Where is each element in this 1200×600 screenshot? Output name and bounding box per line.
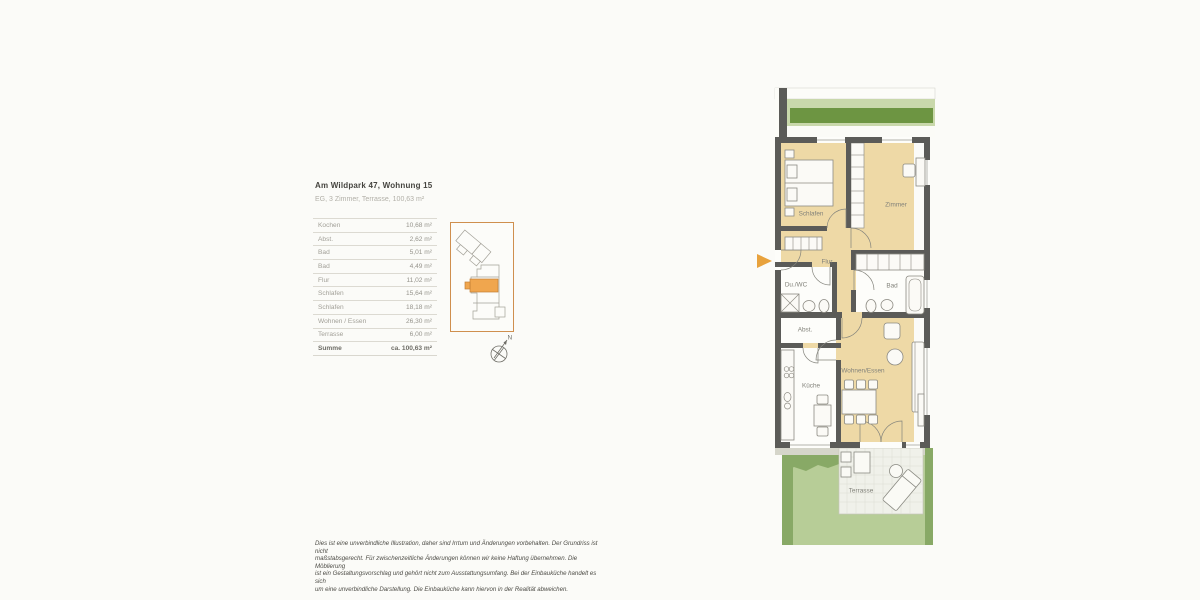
room-label-flur: Flur [821,259,832,266]
room-area-value: 4,49 m² [410,263,437,270]
area-table-row: Wohnen / Essen26,30 m² [313,314,437,328]
room-name: Abst. [313,236,333,243]
area-table-row: Abst.2,62 m² [313,232,437,246]
room-area-value: 15,64 m² [406,290,437,297]
room-name: Terrasse [313,331,343,338]
room-label-terrasse: Terrasse [849,488,874,495]
area-table-row: Bad5,01 m² [313,245,437,259]
desk-chair [903,164,915,177]
scanned-floorplan-page: Am Wildpark 47, Wohnung 15 EG, 3 Zimmer,… [0,0,1200,600]
sideboard [918,394,924,426]
area-table-row: Flur11,02 m² [313,273,437,287]
area-table-row: Summeca. 100,63 m² [313,341,437,355]
page-title: Am Wildpark 47, Wohnung 15 [315,181,432,190]
area-table-row: Kochen10,68 m² [313,218,437,232]
page-subtitle: EG, 3 Zimmer, Terrasse, 100,63 m² [315,196,424,203]
compass-north-label: N [508,335,513,342]
area-table-row: Bad4,49 m² [313,259,437,273]
room-name: Kochen [313,222,340,229]
kitchen-table [814,405,831,426]
room-label-bad: Bad [886,283,897,290]
room-area-value: 6,00 m² [410,331,437,338]
siteplan-sketch [451,223,513,331]
room-name: Flur [313,277,329,284]
siteplan-box [450,222,514,332]
room-name: Schlafen [313,290,344,297]
armchair [884,323,900,339]
room-area-value: 5,01 m² [410,249,437,256]
unit-highlight [465,279,498,292]
room-area-value: 11,02 m² [406,277,437,284]
disclaimer-line: Dies ist eine unverbindliche Illustratio… [315,540,607,555]
room-label-zimmer: Zimmer [885,202,907,209]
disclaimer-text: Dies ist eine unverbindliche Illustratio… [315,540,607,593]
entrance-arrow [757,254,772,268]
room-area-value: 2,62 m² [410,236,437,243]
disclaimer-line: maßstabsgerecht. Für zwischenzeitliche Ä… [315,555,607,570]
area-table-row: Schlafen15,64 m² [313,286,437,300]
room-name: Bad [313,249,330,256]
duwc-wc [819,300,829,313]
coffee-table [887,349,903,365]
building-footprint [452,230,505,319]
room-area-value: 18,18 m² [406,304,437,311]
bad-wc [866,300,876,313]
kitchen-counter [781,350,794,440]
area-table-row: Schlafen18,18 m² [313,300,437,314]
room-name: Wohnen / Essen [313,318,366,325]
room-label-duwc: Du./WC [785,282,807,289]
disclaimer-line: um eine unverbindliche Darstellung. Die … [315,586,607,594]
terrace-area [839,448,923,514]
bad-sink [881,300,893,311]
room-label-schlafen: Schlafen [799,211,824,218]
hall-closet [785,237,822,250]
room-label-kueche: Küche [802,383,820,390]
room-label-wohnen-essen: Wohnen/Essen [841,368,884,375]
area-table: Kochen10,68 m²Abst.2,62 m²Bad5,01 m²Bad4… [313,218,437,356]
room-area-value: 10,68 m² [406,222,437,229]
desk [916,158,925,186]
area-table-row: Terrasse6,00 m² [313,328,437,342]
room-name: Bad [313,263,330,270]
room-name: Schlafen [313,304,344,311]
compass-icon: N [486,332,516,366]
disclaimer-line: ist ein Gestaltungsvorschlag und gehört … [315,570,607,585]
bath-closet [856,254,924,270]
floor-plan: Schlafen Zimmer Flur Du./WC Bad Abst. Kü… [690,80,1020,555]
north-garden-strip [775,88,935,137]
room-area-value: ca. 100,63 m² [391,345,437,352]
duwc-sink [803,301,815,312]
room-area-value: 26,30 m² [406,318,437,325]
floor-plan-drawing [690,80,1020,555]
compass: N [486,332,516,366]
room-label-abst: Abst. [798,327,813,334]
dining-table [842,390,876,414]
room-name: Summe [313,345,342,352]
